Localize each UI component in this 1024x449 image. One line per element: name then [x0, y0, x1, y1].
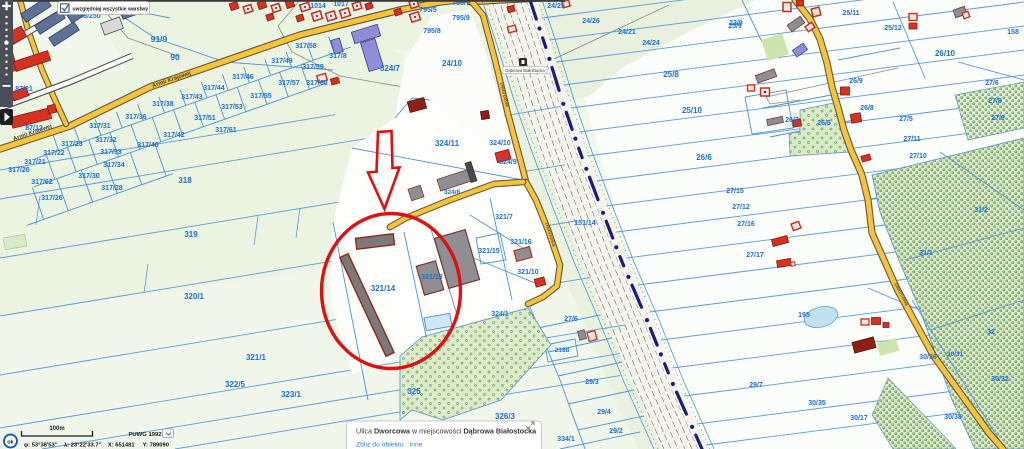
svg-text:317/30: 317/30: [78, 173, 100, 180]
svg-text:317/31: 317/31: [89, 123, 111, 130]
svg-text:321/16: 321/16: [510, 239, 532, 246]
svg-text:30/31: 30/31: [947, 351, 964, 358]
svg-text:321/15: 321/15: [478, 248, 500, 255]
svg-text:334/1: 334/1: [557, 436, 575, 443]
svg-text:31/1: 31/1: [919, 250, 933, 257]
svg-text:26/6: 26/6: [696, 153, 712, 162]
svg-text:317/34: 317/34: [103, 162, 125, 169]
svg-text:25/12: 25/12: [884, 25, 902, 32]
svg-text:317/49: 317/49: [271, 58, 293, 65]
svg-text:91/9: 91/9: [151, 34, 168, 44]
svg-text:326/3: 326/3: [495, 412, 516, 421]
svg-text:1014: 1014: [310, 3, 326, 10]
svg-text:317/46: 317/46: [232, 74, 254, 81]
svg-text:324/10: 324/10: [489, 140, 511, 147]
svg-text:321/7: 321/7: [495, 214, 513, 221]
svg-text:321/10: 321/10: [517, 269, 539, 276]
svg-text:30/17: 30/17: [850, 415, 868, 422]
svg-text:31/2: 31/2: [974, 207, 988, 214]
svg-text:32: 32: [987, 329, 995, 336]
svg-text:87/12: 87/12: [25, 125, 43, 132]
svg-text:25/11: 25/11: [842, 10, 859, 17]
svg-text:317/38: 317/38: [152, 101, 174, 108]
svg-text:324/8: 324/8: [444, 189, 461, 196]
svg-text:26/10: 26/10: [935, 49, 956, 58]
svg-text:321/14: 321/14: [371, 284, 396, 293]
svg-text:uwzględniaj wszystkie warstwy: uwzględniaj wszystkie warstwy: [73, 6, 149, 12]
svg-text:318: 318: [178, 176, 192, 185]
svg-text:158: 158: [1007, 29, 1019, 36]
svg-text:195: 195: [798, 312, 810, 319]
svg-text:25/10: 25/10: [682, 106, 703, 115]
svg-text:27/6: 27/6: [985, 80, 999, 87]
svg-text:317/53: 317/53: [221, 104, 243, 111]
svg-text:27/5: 27/5: [899, 116, 913, 123]
svg-text:317/32: 317/32: [95, 137, 117, 144]
svg-text:319: 319: [184, 230, 198, 239]
svg-text:30/38: 30/38: [944, 414, 962, 421]
svg-text:321/13: 321/13: [421, 274, 443, 281]
svg-text:Dąbrowa Białostocka: Dąbrowa Białostocka: [505, 68, 545, 73]
svg-text:317/8: 317/8: [329, 53, 347, 60]
svg-text:ok: ok: [7, 440, 14, 446]
svg-text:24/25: 24/25: [547, 3, 565, 10]
svg-text:Zbliż do obiektu Inne: Zbliż do obiektu Inne: [356, 442, 423, 449]
svg-text:317/44: 317/44: [203, 85, 225, 92]
svg-text:324/11: 324/11: [435, 139, 460, 148]
svg-text:317/36: 317/36: [125, 114, 147, 121]
svg-text:317/40: 317/40: [137, 142, 159, 149]
svg-text:26/5: 26/5: [817, 120, 831, 127]
svg-text:317/26: 317/26: [41, 195, 63, 202]
svg-text:26/8: 26/8: [860, 105, 874, 112]
svg-text:PUWG 1992: PUWG 1992: [129, 432, 163, 438]
svg-text:320/1: 320/1: [184, 292, 205, 301]
svg-text:27/17: 27/17: [746, 252, 764, 259]
svg-text:87/21: 87/21: [15, 86, 33, 93]
svg-text:317/22: 317/22: [43, 150, 65, 157]
svg-text:2188: 2188: [555, 347, 570, 354]
svg-text:321/1: 321/1: [246, 353, 267, 362]
svg-text:323/1: 323/1: [281, 390, 302, 399]
svg-text:317/62: 317/62: [31, 179, 53, 186]
svg-text:317/61: 317/61: [215, 127, 237, 134]
svg-text:317/43: 317/43: [181, 94, 203, 101]
svg-text:324/1: 324/1: [491, 311, 509, 318]
svg-text:Ulica Dworcowa w miejscowości: Ulica Dworcowa w miejscowości Dąbrowa Bi…: [356, 427, 537, 436]
svg-text:φ: 53°38′53″ λ: 23°22′33.7″: φ: 53°38′53″ λ: 23°22′33.7″ X: 651481 Y:…: [24, 443, 169, 449]
svg-text:24/10: 24/10: [442, 59, 463, 68]
svg-text:24/24: 24/24: [642, 40, 660, 47]
svg-text:27/9: 27/9: [991, 115, 1005, 122]
svg-text:317/20: 317/20: [8, 167, 30, 174]
svg-text:30/32: 30/32: [991, 376, 1009, 383]
svg-text:795/9: 795/9: [452, 15, 470, 22]
svg-text:24/26: 24/26: [582, 18, 600, 25]
svg-text:317/42: 317/42: [163, 132, 185, 139]
svg-text:29/3: 29/3: [585, 379, 599, 386]
svg-text:29/4: 29/4: [597, 409, 611, 416]
svg-text:90: 90: [170, 52, 180, 62]
svg-text:795/5: 795/5: [419, 7, 437, 14]
svg-text:317/55: 317/55: [250, 93, 272, 100]
svg-text:29/2: 29/2: [609, 428, 623, 435]
svg-text:317/21: 317/21: [24, 159, 46, 166]
svg-text:151/14: 151/14: [574, 220, 596, 227]
svg-text:325: 325: [407, 387, 421, 396]
svg-text:24/21: 24/21: [618, 29, 636, 36]
svg-text:27/8: 27/8: [988, 98, 1002, 105]
svg-text:27/15: 27/15: [726, 188, 744, 195]
svg-text:317/28: 317/28: [101, 185, 123, 192]
svg-text:324/7: 324/7: [380, 64, 401, 73]
svg-text:27/10: 27/10: [909, 153, 927, 160]
svg-text:317/33: 317/33: [100, 149, 122, 156]
svg-text:27/12: 27/12: [732, 204, 750, 211]
svg-text:324/9: 324/9: [499, 159, 517, 166]
svg-text:100m: 100m: [49, 426, 64, 432]
svg-text:27/6: 27/6: [564, 316, 578, 323]
svg-text:29/7: 29/7: [749, 382, 763, 389]
svg-text:23/9: 23/9: [729, 20, 743, 27]
svg-text:1017: 1017: [333, 1, 349, 8]
svg-text:317/51: 317/51: [194, 115, 216, 122]
svg-text:317/23: 317/23: [61, 141, 83, 148]
svg-text:27/16: 27/16: [737, 221, 755, 228]
svg-text:795/8: 795/8: [423, 28, 441, 35]
svg-text:26/9: 26/9: [849, 78, 863, 85]
svg-text:30/35: 30/35: [808, 400, 826, 407]
svg-text:26/7: 26/7: [785, 117, 799, 124]
svg-text:27/11: 27/11: [903, 136, 920, 143]
svg-text:25/8: 25/8: [663, 70, 679, 79]
svg-text:322/5: 322/5: [225, 380, 246, 389]
svg-text:317/60: 317/60: [306, 80, 328, 87]
svg-text:317/57: 317/57: [278, 80, 300, 87]
svg-text:317/59: 317/59: [302, 64, 324, 71]
svg-text:317/58: 317/58: [295, 43, 317, 50]
svg-text:30/36: 30/36: [919, 354, 937, 361]
